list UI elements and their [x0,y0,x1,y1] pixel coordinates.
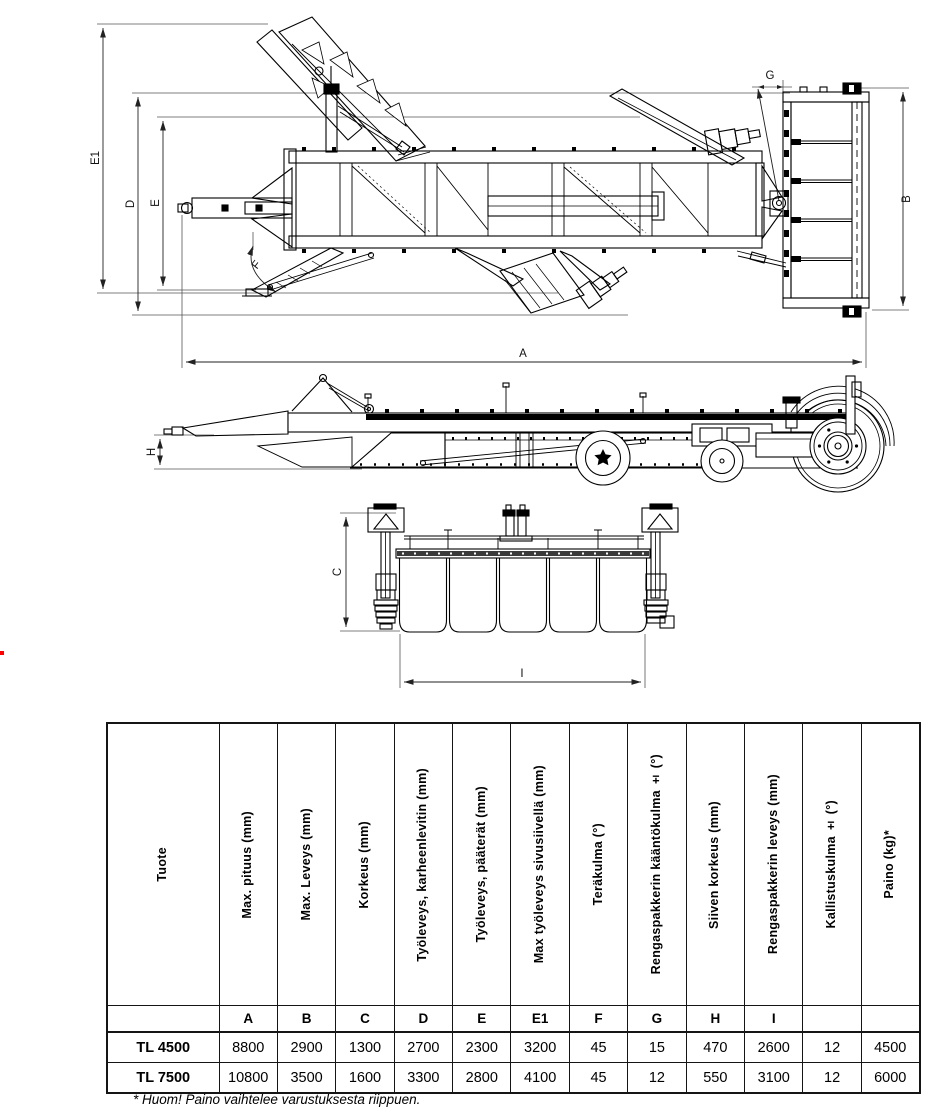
dimension-labels: E1 D E F A G B H C I [90,70,913,680]
drawbar-plan [178,168,292,247]
rear-view [368,504,678,632]
column-header: Rengaspakkerin leveys (mm) [767,774,781,954]
dimension-label-c: C [332,568,344,576]
table-row: TL 7500 10800 3500 1600 3300 2800 4100 4… [107,1063,920,1094]
column-header: Työleveys, karheenlevitin (mm) [416,768,430,962]
front-mast [292,375,374,414]
value-cell: 2300 [453,1032,511,1063]
footnote: * Huom! Paino vaihtelee varustuksesta ri… [133,1092,420,1107]
folded-wing [257,17,430,161]
dimension-label-f: F [250,259,264,272]
dimension-label-a: A [519,348,527,360]
column-header: Siiven korkeus (mm) [708,801,722,929]
letter-row: A B C D E E1 F G H I [107,1006,920,1033]
letter-cell [861,1006,919,1033]
value-cell: 12 [803,1032,861,1063]
letter-cell: D [394,1006,452,1033]
front-blade-right [455,248,631,313]
value-cell: 3500 [277,1063,335,1094]
value-cell: 4100 [511,1063,569,1094]
drawbar-side [164,411,288,436]
letter-cell: A [219,1006,277,1033]
left-support-arm [368,504,404,629]
value-cell: 2800 [453,1063,511,1094]
front-blade-left [242,248,374,297]
value-cell: 12 [628,1063,686,1094]
column-header: Max. pituus (mm) [241,811,255,919]
column-header: Teräkulma (°) [592,823,606,905]
column-header-product: Tuote [156,847,170,882]
packer-hinge [737,166,788,267]
dimension-label-b: B [901,195,913,203]
header-row: Tuote Max. pituus (mm) Max. Leveys (mm) … [107,723,920,1006]
value-cell: 2900 [277,1032,335,1063]
packer-tyres [400,558,647,632]
table-row: TL 4500 8800 2900 1300 2700 2300 3200 45… [107,1032,920,1063]
value-cell: 470 [686,1032,744,1063]
red-marker-dot [0,651,4,655]
dimension-label-g: G [766,70,775,82]
right-wing-fold [610,89,762,165]
center-wheel [576,431,630,485]
value-cell: 12 [803,1063,861,1094]
letter-cell: F [569,1006,627,1033]
page: { "drawing": { "labels": { "e1":"E1","d"… [0,0,931,1115]
column-header: Työleveys, pääterät (mm) [475,786,489,942]
value-cell: 2600 [745,1032,803,1063]
value-cell: 3200 [511,1032,569,1063]
dimension-label-d: D [125,200,137,208]
dimension-label-e1: E1 [90,151,102,165]
spec-table: Tuote Max. pituus (mm) Max. Leveys (mm) … [106,722,921,1094]
column-header: Max työleveys sivusiivellä (mm) [533,765,547,963]
value-cell: 550 [686,1063,744,1094]
product-name: TL 7500 [107,1063,219,1094]
packer-flange [396,549,650,558]
value-cell: 45 [569,1032,627,1063]
column-header: Max. Leveys (mm) [300,808,314,920]
dimension-label-i: I [520,668,523,680]
value-cell: 6000 [861,1063,919,1094]
column-header: Kallistuskulma ± (°) [825,800,839,929]
value-cell: 1300 [336,1032,394,1063]
dimension-label-h: H [146,448,158,456]
main-frame [284,147,764,253]
letter-cell [803,1006,861,1033]
letter-cell: I [745,1006,803,1033]
spec-table-wrap: Tuote Max. pituus (mm) Max. Leveys (mm) … [106,722,921,1094]
right-support-arm [642,504,678,628]
letter-cell: G [628,1006,686,1033]
plan-view [178,17,869,317]
value-cell: 1600 [336,1063,394,1094]
letter-cell: E [453,1006,511,1033]
column-header: Paino (kg)* [883,830,897,899]
letter-cell: H [686,1006,744,1033]
technical-drawing: E1 D E F A G B H C I [0,0,931,712]
value-cell: 3100 [745,1063,803,1094]
value-cell: 45 [569,1063,627,1094]
tyre-packer-plan [783,83,869,317]
product-name: TL 4500 [107,1032,219,1063]
column-header: Korkeus (mm) [358,821,372,909]
value-cell: 8800 [219,1032,277,1063]
value-cell: 10800 [219,1063,277,1094]
hydraulic-motor-lower [576,261,631,309]
side-view [164,375,894,493]
dimension-label-e: E [150,199,162,207]
value-cell: 15 [628,1032,686,1063]
packer-top-frame [404,505,644,549]
value-cell: 4500 [861,1032,919,1063]
letter-cell: E1 [511,1006,569,1033]
letter-cell: C [336,1006,394,1033]
letter-cell-empty [107,1006,219,1033]
extension-lines [97,24,909,688]
value-cell: 2700 [394,1032,452,1063]
value-cell: 3300 [394,1063,452,1094]
column-header: Rengaspakkerin kääntökulma ± (°) [650,754,664,974]
letter-cell: B [277,1006,335,1033]
